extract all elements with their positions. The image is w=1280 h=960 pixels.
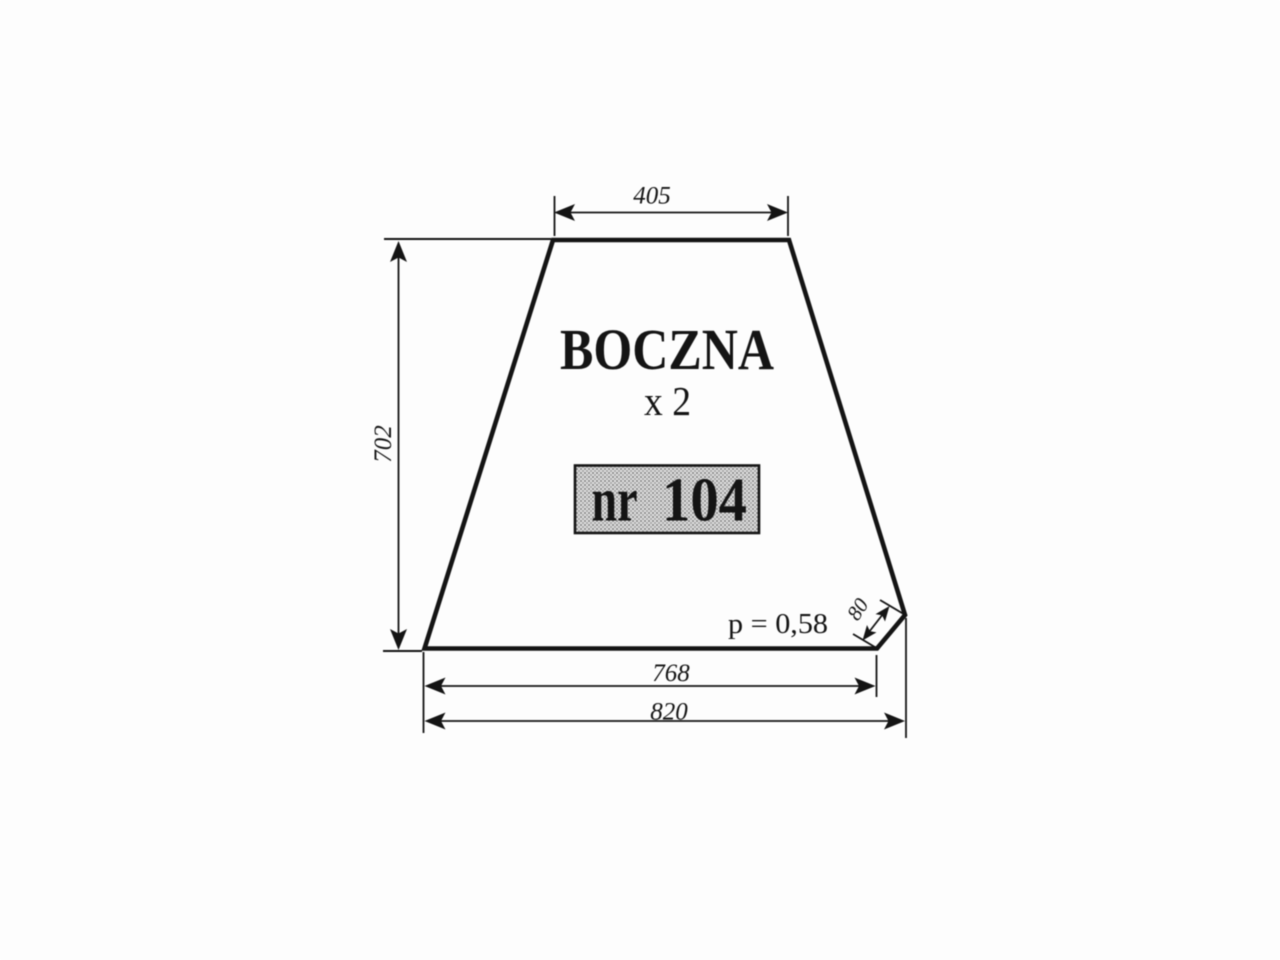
svg-text:BOCZNA: BOCZNA — [560, 317, 774, 382]
svg-text:104: 104 — [662, 467, 747, 535]
svg-text:p = 0,58: p = 0,58 — [728, 608, 828, 640]
svg-text:nr: nr — [592, 467, 638, 535]
svg-text:768: 768 — [652, 660, 690, 687]
svg-text:405: 405 — [633, 183, 671, 210]
svg-text:x 2: x 2 — [644, 378, 691, 424]
svg-text:820: 820 — [650, 699, 688, 726]
svg-text:702: 702 — [370, 425, 397, 463]
